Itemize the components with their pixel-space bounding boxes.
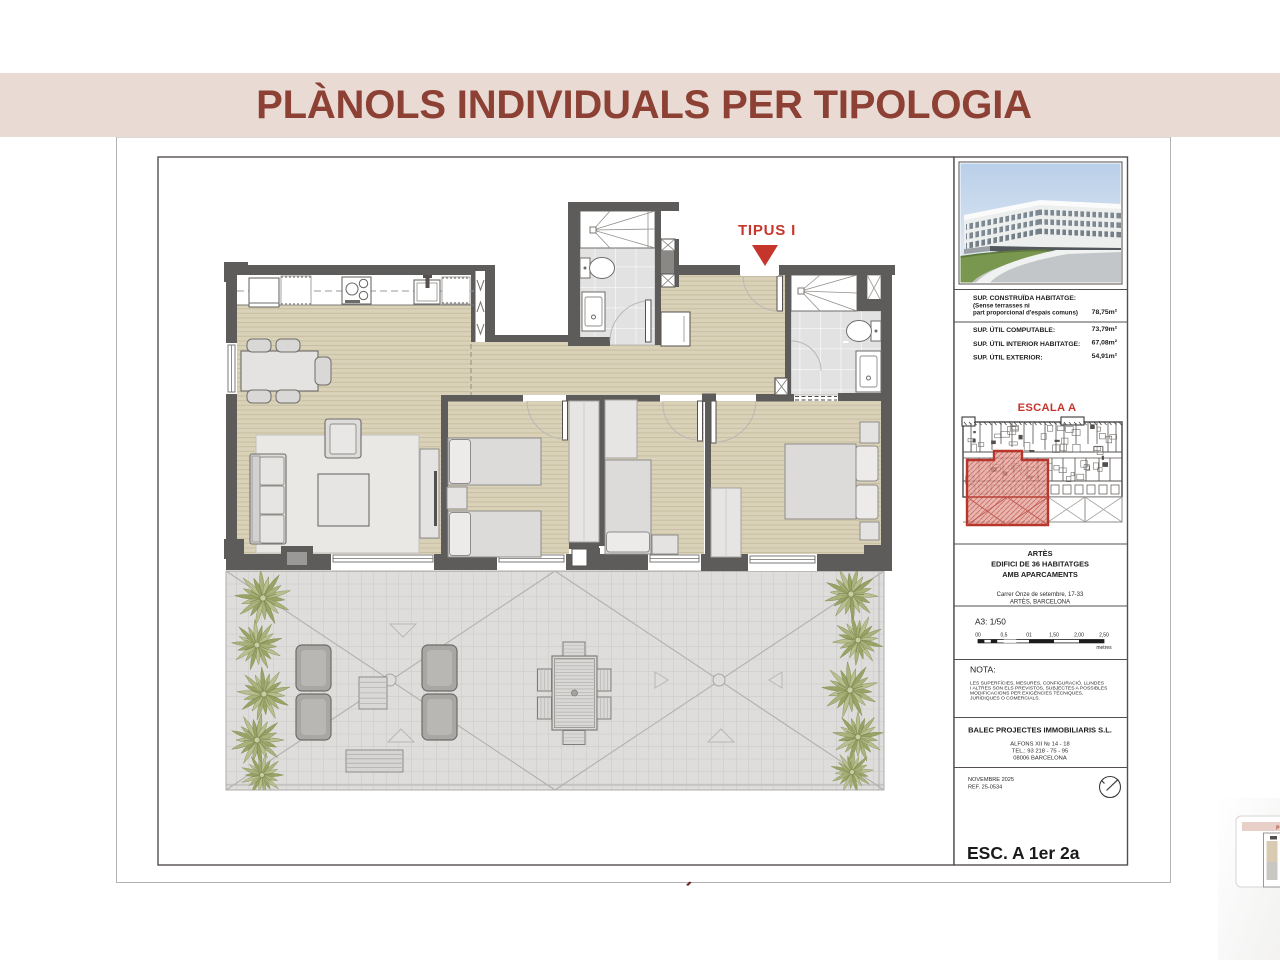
svg-text:0,5: 0,5: [1001, 633, 1008, 639]
svg-text:LES SUPERFÍCIES, MESURES, CONF: LES SUPERFÍCIES, MESURES, CONFIGURACIÓ, …: [970, 680, 1105, 687]
svg-text:P: P: [1276, 826, 1280, 832]
svg-text:08006 BARCELONA: 08006 BARCELONA: [1013, 756, 1067, 762]
svg-text:TIPUS I: TIPUS I: [738, 222, 796, 239]
svg-text:ALFONS XII № 14 - 18: ALFONS XII № 14 - 18: [1010, 742, 1069, 748]
svg-text:NOTA:: NOTA:: [970, 665, 996, 675]
svg-text:01: 01: [1026, 633, 1032, 639]
svg-text:67,08m²: 67,08m²: [1092, 340, 1118, 347]
svg-text:2,50: 2,50: [1099, 633, 1109, 639]
svg-text:SUP. ÚTIL INTERIOR HABITATGE:: SUP. ÚTIL INTERIOR HABITATGE:: [973, 339, 1080, 348]
svg-text:ESCALA A: ESCALA A: [1018, 402, 1077, 414]
svg-text:73,79m²: 73,79m²: [1092, 326, 1118, 333]
svg-text:2,00: 2,00: [1074, 633, 1084, 639]
svg-text:00: 00: [975, 633, 981, 639]
svg-text:PLÀNOLS INDIVIDUALS PER TIPOLO: PLÀNOLS INDIVIDUALS PER TIPOLOGIA: [256, 82, 1032, 127]
svg-text:SUP. CONSTRUÏDA HABITATGE:: SUP. CONSTRUÏDA HABITATGE:: [973, 294, 1076, 302]
svg-text:Carrer Onze de setembre, 17-33: Carrer Onze de setembre, 17-33: [997, 592, 1084, 598]
svg-text:(Sense terrasses ni: (Sense terrasses ni: [973, 303, 1030, 310]
svg-text:78,75m²: 78,75m²: [1092, 309, 1118, 316]
svg-text:A3: 1/50: A3: 1/50: [975, 617, 1006, 627]
svg-text:MODIFICACIONS PER EXIGÈNCIES T: MODIFICACIONS PER EXIGÈNCIES TÈCNIQUES,: [970, 690, 1083, 697]
svg-text:ESC. A 1er 2a: ESC. A 1er 2a: [967, 843, 1080, 863]
svg-text:SUP. ÚTIL COMPUTABLE:: SUP. ÚTIL COMPUTABLE:: [973, 325, 1055, 334]
svg-text:EDIFICI DE 36 HABITATGES: EDIFICI DE 36 HABITATGES: [991, 560, 1089, 569]
svg-text:BALEC PROJECTES IMMOBILIARIS S: BALEC PROJECTES IMMOBILIARIS S.L.: [968, 726, 1112, 735]
svg-text:NOVEMBRE 2025: NOVEMBRE 2025: [968, 777, 1014, 783]
svg-text:SUP. ÚTIL EXTERIOR:: SUP. ÚTIL EXTERIOR:: [973, 353, 1043, 362]
svg-text:part proporcional d'espais com: part proporcional d'espais comuns): [973, 310, 1078, 317]
svg-text:ARTÈS, BARCELONA: ARTÈS, BARCELONA: [1010, 599, 1070, 606]
svg-text:1,50: 1,50: [1049, 633, 1059, 639]
svg-text:REF. 25-0534: REF. 25-0534: [968, 785, 1002, 791]
svg-text:AMB APARCAMENTS: AMB APARCAMENTS: [1002, 570, 1078, 579]
svg-text:ARTÈS: ARTÈS: [1027, 549, 1052, 558]
svg-text:JURÍDIQUES O COMERCIALS.: JURÍDIQUES O COMERCIALS.: [970, 695, 1040, 702]
svg-text:TEL.: 93 218 - 75 - 95: TEL.: 93 218 - 75 - 95: [1012, 749, 1068, 755]
svg-text:metres: metres: [1096, 645, 1112, 651]
svg-text:54,91m²: 54,91m²: [1092, 353, 1118, 360]
